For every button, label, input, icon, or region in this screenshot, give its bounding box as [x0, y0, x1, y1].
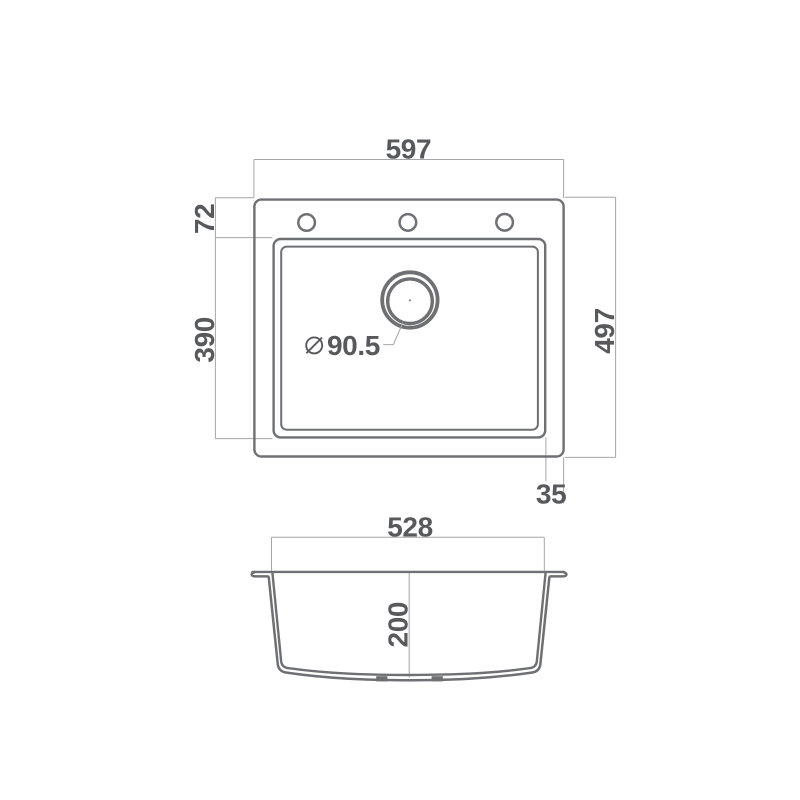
svg-text:200: 200	[383, 602, 414, 648]
svg-text:90.5: 90.5	[327, 330, 380, 361]
svg-text:390: 390	[189, 317, 220, 363]
svg-text:35: 35	[536, 478, 566, 509]
svg-text:72: 72	[189, 204, 220, 234]
svg-text:597: 597	[386, 133, 432, 164]
svg-text:528: 528	[387, 511, 433, 542]
svg-text:497: 497	[589, 308, 620, 354]
